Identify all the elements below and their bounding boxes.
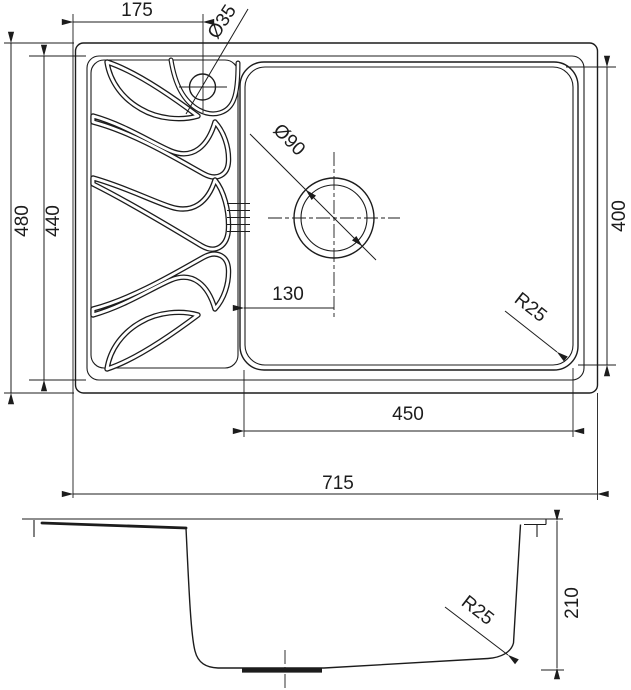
dim-label-overall-width: 715 [322, 473, 354, 494]
drain-groove [93, 254, 229, 315]
dim-label-bowl-height: 210 [562, 587, 583, 619]
drain-groove [107, 312, 198, 369]
drainboard-surface [42, 523, 186, 528]
dim-label-tap-hole-diameter: Ø35 [204, 1, 241, 43]
extension-lines [4, 14, 616, 670]
dim-label-corner-radius-top: R25 [510, 289, 550, 327]
drain-groove [107, 62, 198, 119]
dim-label-basin-depth: 440 [43, 205, 64, 237]
sink-technical-drawing-page: 175 Ø35 480 440 Ø90 400 130 R25 450 715 … [0, 0, 631, 690]
top-view [76, 43, 598, 393]
dim-label-tap-hole-offset: 175 [121, 0, 153, 21]
dim-label-drain-offset: 130 [272, 284, 304, 305]
dim-label-bowl-depth: 400 [609, 200, 630, 232]
drain-groove [93, 116, 229, 177]
dim-label-overall-depth: 480 [12, 205, 33, 237]
dimensions: 175 Ø35 480 440 Ø90 400 130 R25 450 715 … [4, 0, 630, 670]
bowl-outer-edge [240, 62, 578, 370]
bowl [240, 62, 578, 370]
dim-label-corner-radius-side: R25 [457, 592, 497, 630]
dim-label-drain-diameter: Ø90 [269, 120, 309, 160]
dim-label-bowl-width: 450 [392, 404, 424, 425]
drain-groove [93, 178, 229, 249]
sink-technical-drawing: 175 Ø35 480 440 Ø90 400 130 R25 450 715 … [0, 0, 631, 690]
drainboard [91, 60, 238, 369]
